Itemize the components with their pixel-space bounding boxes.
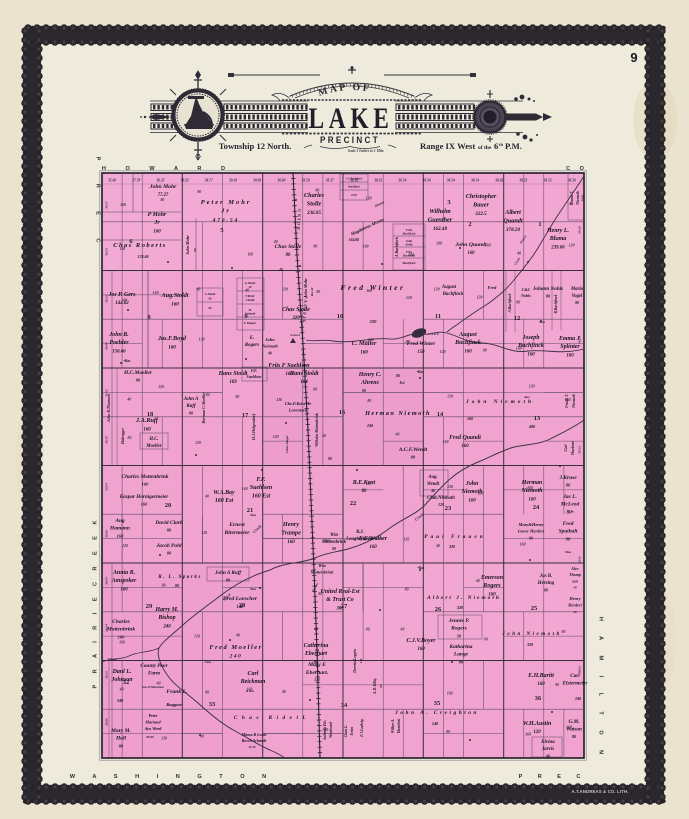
svg-text:80: 80 (160, 198, 164, 202)
svg-text:P Mohr: P Mohr (148, 212, 167, 218)
svg-text:120: 120 (201, 531, 207, 535)
svg-text:80: 80 (167, 528, 172, 533)
svg-text:J.A.Ruff: J.A.Ruff (135, 417, 159, 424)
svg-text:W.H.Austin: W.H.Austin (523, 721, 552, 727)
svg-text:Johann Nohls: Johann Nohls (532, 286, 563, 292)
svg-text:160: 160 (520, 543, 526, 547)
svg-text:160: 160 (447, 692, 453, 696)
svg-text:Chas Stolle: Chas Stolle (275, 244, 302, 250)
svg-text:G.M.: G.M. (569, 719, 580, 725)
svg-text:120: 120 (477, 296, 483, 300)
svg-text:Alex: Alex (570, 566, 578, 571)
svg-text:E.: E. (249, 336, 255, 341)
svg-text:Guenther: Guenther (428, 216, 453, 223)
svg-text:Niemoth: Niemoth (572, 394, 576, 409)
svg-text:25: 25 (531, 605, 538, 612)
svg-text:160: 160 (121, 298, 127, 302)
svg-text:School: School (290, 333, 300, 337)
svg-text:160: 160 (528, 497, 536, 502)
svg-text:Buchfinck: Buchfinck (347, 186, 360, 189)
svg-text:W A S H I N G T O N: W A S H I N G T O N (70, 774, 274, 780)
svg-text:Lange: Lange (453, 652, 469, 658)
svg-text:40: 40 (400, 628, 405, 632)
svg-text:38.57: 38.57 (105, 201, 109, 210)
svg-text:160: 160 (324, 539, 330, 543)
svg-text:80: 80 (483, 349, 487, 353)
svg-text:320: 320 (291, 316, 300, 321)
svg-text:Woodward: Woodward (329, 722, 333, 738)
svg-text:120: 120 (403, 538, 409, 542)
svg-text:Nohls: Nohls (404, 243, 413, 247)
svg-text:38.35: 38.35 (105, 671, 109, 680)
svg-text:Chr.F.Kriscele: Chr.F.Kriscele (285, 401, 311, 406)
svg-text:120: 120 (322, 728, 328, 732)
svg-text:36: 36 (535, 695, 542, 702)
svg-text:Bosch Schmidt: Bosch Schmidt (241, 738, 267, 743)
svg-text:80: 80 (366, 627, 370, 631)
svg-text:74.81: 74.81 (581, 194, 585, 201)
svg-text:160: 160 (142, 482, 149, 487)
svg-text:40: 40 (204, 495, 209, 499)
svg-text:109: 109 (229, 380, 237, 385)
svg-text:Paul Frauen: Paul Frauen (424, 534, 486, 540)
svg-text:23.95: 23.95 (350, 194, 358, 197)
svg-text:40: 40 (267, 351, 272, 355)
svg-text:Habregger: Habregger (121, 427, 125, 445)
svg-text:80: 80 (206, 393, 210, 397)
svg-text:80: 80 (209, 306, 213, 310)
svg-text:Henry: Henry (282, 521, 299, 528)
svg-text:Eberhart: Eberhart (304, 651, 327, 657)
svg-text:Chas.Jaeger: Chas.Jaeger (285, 435, 289, 453)
svg-text:P R E C: P R E C (95, 157, 101, 254)
svg-text:38.03: 38.03 (105, 577, 109, 586)
svg-text:Emerson: Emerson (480, 575, 504, 581)
svg-text:160: 160 (566, 353, 574, 358)
svg-text:160: 160 (247, 687, 253, 691)
svg-text:F.J.Ludwig: F.J.Ludwig (360, 719, 364, 737)
svg-text:80: 80 (200, 735, 204, 739)
svg-text:Buchfinck: Buchfinck (442, 292, 464, 297)
svg-text:A.C.F.Wendt: A.C.F.Wendt (398, 447, 428, 453)
svg-text:Suehlsen: Suehlsen (247, 374, 262, 379)
svg-text:Hanchett: Hanchett (397, 718, 401, 735)
svg-text:46: 46 (430, 489, 435, 493)
svg-text:Chas Stolle: Chas Stolle (282, 307, 310, 313)
svg-text:80: 80 (362, 489, 367, 494)
svg-text:J.Stolle: J.Stolle (245, 298, 255, 302)
svg-text:Mary&Henry: Mary&Henry (518, 522, 544, 527)
svg-text:Fred Moeller: Fred Moeller (209, 644, 262, 651)
svg-text:80: 80 (316, 290, 320, 294)
svg-text:Wilhelm: Wilhelm (429, 208, 451, 215)
svg-text:Chas RidelL: Chas RidelL (234, 715, 310, 721)
svg-text:120: 120 (440, 350, 446, 354)
svg-text:80: 80 (193, 248, 197, 252)
svg-text:160: 160 (117, 533, 124, 538)
svg-text:Jas.F.Boyd: Jas.F.Boyd (157, 335, 187, 342)
svg-text:38.21: 38.21 (518, 179, 527, 183)
svg-text:LAKE: LAKE (309, 102, 394, 135)
svg-text:Lorentzen: Lorentzen (288, 408, 308, 413)
svg-text:160: 160 (436, 242, 442, 246)
svg-text:Wilhelm Mottenbrink: Wilhelm Mottenbrink (315, 413, 319, 447)
svg-text:22: 22 (350, 500, 357, 507)
svg-text:Rogers: Rogers (482, 583, 501, 589)
svg-text:236.95: 236.95 (306, 210, 321, 216)
svg-text:A.T.ANDREAS & CO. LITH.: A.T.ANDREAS & CO. LITH. (571, 789, 628, 794)
svg-text:162.48: 162.48 (433, 226, 447, 232)
svg-text:John Quandt: John Quandt (454, 242, 487, 248)
svg-text:120: 120 (529, 385, 535, 389)
svg-text:160: 160 (461, 444, 469, 449)
svg-text:Bitermeier: Bitermeier (224, 530, 251, 536)
svg-text:40: 40 (545, 753, 550, 758)
svg-text:160: 160 (360, 349, 368, 355)
svg-text:son: son (571, 578, 578, 583)
svg-text:29: 29 (146, 603, 153, 610)
svg-text:Catherina: Catherina (304, 643, 329, 649)
svg-text:Baggart: Baggart (165, 702, 182, 707)
svg-text:160: 160 (527, 352, 535, 357)
svg-text:Carl: Carl (570, 673, 580, 679)
svg-text:Rogers: Rogers (245, 343, 259, 348)
svg-text:Eberhart.: Eberhart. (305, 670, 329, 676)
svg-text:Aya Ward: Aya Ward (144, 726, 163, 731)
svg-text:& Trust Co: & Trust Co (326, 597, 354, 603)
svg-text:120: 120 (314, 678, 320, 682)
svg-text:39.18: 39.18 (228, 179, 237, 183)
svg-text:John Mohr: John Mohr (303, 278, 308, 299)
svg-text:Scale 2 Inches to 1 Mile.: Scale 2 Inches to 1 Mile. (348, 149, 385, 153)
svg-text:40: 40 (568, 202, 573, 206)
svg-text:38.34: 38.34 (422, 179, 431, 183)
svg-text:140: 140 (432, 721, 439, 726)
svg-text:14: 14 (437, 411, 444, 418)
svg-text:Aug.Stoldt: Aug.Stoldt (161, 292, 189, 299)
svg-text:11: 11 (435, 313, 441, 320)
svg-text:A.Wendt: A.Wendt (204, 292, 216, 296)
svg-text:240: 240 (366, 423, 373, 428)
svg-text:160: 160 (247, 253, 253, 257)
svg-text:120: 120 (447, 395, 453, 399)
svg-text:•Kas: •Kas (539, 320, 546, 324)
svg-text:80: 80 (313, 245, 317, 249)
svg-text:39.20: 39.20 (578, 226, 582, 235)
svg-text:40: 40 (156, 681, 161, 685)
svg-text:Range IX West: Range IX West (420, 141, 475, 151)
svg-text:John Niemoth: John Niemoth (465, 399, 534, 405)
svg-text:•Kas: •Kas (250, 587, 257, 591)
svg-text:Wm: Wm (330, 533, 338, 538)
svg-text:9: 9 (630, 50, 637, 65)
svg-text:120: 120 (447, 485, 453, 489)
svg-text:Buchfinck: Buchfinck (401, 261, 416, 265)
svg-text:Herdert: Herdert (567, 602, 582, 607)
svg-text:Mottenbrink: Mottenbrink (309, 570, 334, 575)
svg-text:38.60: 38.60 (276, 179, 285, 183)
svg-text:38.96: 38.96 (349, 179, 358, 183)
svg-text:26: 26 (435, 606, 442, 613)
svg-text:80: 80 (544, 587, 548, 592)
svg-text:A.Buchfinck: A.Buchfinck (508, 293, 512, 313)
svg-text:John Mohr: John Mohr (185, 235, 190, 256)
svg-text:Charles Mottenbrink: Charles Mottenbrink (122, 474, 169, 480)
svg-text:John A: John A (183, 397, 200, 402)
svg-text:160: 160 (153, 229, 161, 234)
svg-text:Gover Herdert: Gover Herdert (518, 529, 545, 534)
svg-text:Buchfinck: Buchfinck (401, 232, 416, 236)
svg-text:th: th (499, 142, 503, 147)
svg-text:Huebner: Huebner (571, 441, 575, 456)
svg-text:B.Buchfinck: B.Buchfinck (554, 294, 558, 314)
svg-text:Henry C.: Henry C. (358, 372, 381, 378)
svg-text:J.Kruse: J.Kruse (558, 475, 577, 481)
svg-text:C.J.V.Boyer: C.J.V.Boyer (406, 638, 436, 644)
svg-text:Wilber A.: Wilber A. (391, 719, 395, 734)
svg-text:40: 40 (235, 634, 240, 638)
svg-text:38.55: 38.55 (543, 179, 552, 183)
svg-text:80: 80 (516, 300, 520, 304)
svg-text:E.Wagner: E.Wagner (243, 321, 257, 325)
svg-text:of the: of the (478, 145, 492, 151)
svg-text:Peter Mohr: Peter Mohr (201, 199, 252, 206)
svg-text:Suehlsen: Suehlsen (250, 485, 273, 491)
svg-text:150: 150 (418, 350, 426, 355)
svg-text:Jacob Pohl: Jacob Pohl (155, 543, 182, 549)
svg-text:Hall: Hall (115, 736, 126, 742)
svg-text:38.88: 38.88 (105, 342, 109, 351)
svg-text:120: 120 (366, 197, 372, 201)
svg-text:38.92: 38.92 (180, 179, 189, 183)
svg-text:Elstermeier: Elstermeier (562, 680, 589, 686)
svg-text:160: 160 (120, 587, 128, 592)
svg-text:34: 34 (341, 702, 348, 709)
svg-text:80: 80 (566, 483, 571, 488)
svg-text:Carl: Carl (564, 444, 568, 452)
svg-text:160 Est: 160 Est (252, 493, 271, 499)
svg-text:80: 80 (119, 743, 124, 748)
svg-text:120: 120 (122, 544, 128, 548)
svg-text:Charles: Charles (112, 619, 130, 625)
svg-text:P R A I R I E C R E E K: P R A I R I E C R E E K (93, 516, 99, 689)
svg-text:80: 80 (396, 374, 400, 378)
svg-text:2: 2 (468, 221, 471, 228)
svg-text:John A Ruff: John A Ruff (214, 570, 243, 576)
svg-text:Jos P. Gers: Jos P. Gers (107, 292, 136, 298)
svg-text:38.31: 38.31 (373, 179, 382, 183)
svg-text:Jarvis: Jarvis (541, 747, 554, 752)
svg-text:38.31: 38.31 (578, 556, 582, 565)
svg-text:40: 40 (244, 289, 249, 293)
svg-text:Beickman: Beickman (240, 679, 266, 685)
svg-text:John A. Creighton: John A. Creighton (394, 710, 479, 716)
svg-text:160: 160 (443, 440, 449, 444)
svg-text:Albert: Albert (504, 209, 521, 216)
svg-text:120: 120 (195, 441, 201, 445)
svg-text:1: 1 (538, 221, 541, 228)
svg-text:38.37: 38.37 (325, 179, 334, 183)
svg-text:160: 160 (119, 641, 125, 645)
svg-text:160: 160 (168, 344, 176, 350)
svg-text:164.86: 164.86 (349, 238, 360, 242)
svg-text:80: 80 (362, 389, 366, 393)
svg-text:Mottenbrink: Mottenbrink (106, 627, 135, 633)
svg-text:80: 80 (315, 189, 319, 193)
svg-text:38.74: 38.74 (397, 179, 406, 183)
svg-text:80: 80 (379, 684, 383, 688)
svg-text:E.H.Baritt: E.H.Baritt (527, 673, 554, 679)
svg-text:160: 160 (464, 349, 472, 354)
svg-text:38.58: 38.58 (105, 436, 109, 445)
svg-text:John: John (264, 337, 275, 342)
svg-text:McLeod: McLeod (560, 502, 580, 508)
svg-text:40: 40 (313, 628, 318, 632)
svg-text:P.M.: P.M. (505, 141, 522, 151)
svg-text:160: 160 (143, 426, 151, 432)
svg-text:80: 80 (405, 588, 409, 592)
svg-text:Moeller: Moeller (145, 444, 161, 449)
svg-text:178.46: 178.46 (138, 254, 149, 259)
svg-text:Joseph: Joseph (521, 335, 539, 341)
svg-text:LAKE: LAKE (428, 332, 440, 336)
svg-text:Frits F Suehlsen: Frits F Suehlsen (268, 363, 310, 369)
svg-text:33: 33 (209, 701, 216, 708)
svg-text:40: 40 (119, 687, 124, 691)
svg-text:156.66: 156.66 (112, 349, 126, 354)
svg-text:Mary E: Mary E (307, 662, 326, 668)
svg-text:80: 80 (197, 190, 201, 194)
svg-text:John Niemoth: John Niemoth (501, 632, 562, 637)
svg-text:Peter: Peter (148, 713, 157, 718)
svg-text:Ahrens: Ahrens (360, 380, 380, 386)
svg-text:F.F.: F.F. (251, 368, 257, 373)
svg-text:County Poor: County Poor (140, 663, 168, 669)
svg-text:120: 120 (366, 482, 372, 486)
svg-text:Kaspar Hornigermeier: Kaspar Hornigermeier (119, 494, 170, 500)
svg-text:120: 120 (438, 503, 444, 507)
svg-text:104: 104 (300, 380, 308, 385)
svg-text:80: 80 (446, 730, 450, 734)
svg-text:Stolle: Stolle (307, 200, 322, 207)
svg-text:120: 120 (273, 435, 279, 439)
svg-text:Nohls: Nohls (520, 293, 531, 298)
svg-text:38.66: 38.66 (105, 530, 109, 539)
svg-text:80: 80 (328, 457, 332, 461)
svg-text:160: 160 (525, 732, 531, 736)
svg-text:August: August (458, 332, 477, 338)
svg-text:239.06: 239.06 (550, 245, 565, 250)
svg-text:Jas B.: Jas B. (539, 574, 553, 579)
svg-text:Poehler: Poehler (109, 340, 129, 346)
svg-text:10: 10 (337, 313, 344, 320)
svg-text:Fred Winter: Fred Winter (407, 341, 436, 347)
svg-text:38.54: 38.54 (446, 179, 455, 183)
svg-text:40: 40 (572, 586, 577, 590)
svg-text:40: 40 (317, 592, 322, 596)
svg-text:12: 12 (514, 315, 521, 322)
svg-text:Fred: Fred (563, 521, 574, 527)
svg-text:Rez 40: Rez 40 (310, 287, 314, 296)
svg-text:Niemoth: Niemoth (576, 191, 580, 206)
svg-text:50: 50 (457, 633, 462, 638)
svg-text:School: School (107, 657, 116, 661)
svg-text:160: 160 (516, 347, 522, 351)
svg-text:Neimoth: Neimoth (261, 344, 278, 349)
svg-text:40: 40 (435, 544, 440, 548)
svg-text:80: 80 (406, 340, 410, 344)
svg-text:B.E.Kent: B.E.Kent (352, 480, 376, 486)
svg-text:120: 120 (282, 288, 288, 292)
svg-text:H.C.: H.C. (148, 437, 158, 442)
svg-text:80: 80 (196, 288, 200, 292)
svg-text:Bauer: Bauer (472, 201, 489, 208)
svg-text:80: 80 (529, 536, 533, 540)
svg-text:35: 35 (434, 700, 441, 707)
svg-text:24: 24 (533, 504, 540, 511)
svg-text:H.J.Holgendorf: H.J.Holgendorf (251, 413, 256, 441)
svg-text:80: 80 (286, 253, 291, 258)
svg-text:Splinter: Splinter (560, 344, 580, 350)
svg-text:•Kas: •Kas (418, 566, 425, 570)
svg-text:•Kas: •Kas (124, 359, 131, 363)
svg-text:R. L. Sparks: R. L. Sparks (158, 575, 202, 580)
svg-text:160: 160 (287, 539, 295, 545)
svg-text:240: 240 (574, 696, 581, 701)
svg-text:160: 160 (368, 338, 374, 342)
svg-text:80: 80 (235, 395, 239, 399)
svg-text:160: 160 (477, 492, 483, 496)
svg-text:Charles: Charles (304, 192, 325, 199)
svg-text:Aug: Aug (114, 518, 125, 524)
svg-text:Jr: Jr (153, 220, 160, 226)
svg-text:Hamann: Hamann (109, 526, 130, 532)
svg-text:320: 320 (369, 319, 378, 324)
svg-text:Herman Niemoth: Herman Niemoth (364, 410, 431, 417)
svg-text:160: 160 (141, 501, 148, 506)
svg-text:240: 240 (229, 654, 242, 660)
svg-text:120: 120 (199, 338, 205, 342)
svg-text:PRECINCT: PRECINCT (320, 135, 380, 145)
svg-text:Henry: Henry (569, 596, 581, 601)
svg-text:Fred Quandt: Fred Quandt (449, 435, 481, 441)
svg-text:120: 120 (569, 244, 575, 248)
svg-text:40 40: 40 40 (248, 745, 256, 749)
svg-text:160: 160 (171, 301, 179, 307)
svg-text:80: 80 (128, 436, 132, 440)
svg-text:80: 80 (136, 378, 141, 383)
svg-text:476.54: 476.54 (212, 217, 239, 223)
svg-text:38.58: 38.58 (301, 179, 310, 183)
svg-text:A.Buchfinck: A.Buchfinck (395, 237, 399, 258)
svg-text:160: 160 (565, 398, 571, 402)
svg-text:37.78: 37.78 (131, 179, 140, 183)
svg-text:Jr: Jr (220, 208, 231, 215)
svg-text:Trampe: Trampe (281, 529, 301, 536)
svg-text:David Clark: David Clark (154, 520, 183, 526)
svg-text:Henry L.: Henry L. (546, 228, 569, 234)
svg-text:120: 120 (406, 296, 412, 300)
svg-text:Fred: Fred (488, 285, 498, 290)
svg-text:80: 80 (459, 659, 464, 664)
svg-text:Geo.W.Mansheur: Geo.W.Mansheur (142, 685, 165, 689)
svg-text:33.94: 33.94 (105, 483, 109, 492)
svg-text:38.56: 38.56 (494, 179, 503, 183)
svg-text:380: 380 (335, 606, 344, 611)
svg-text:40: 40 (572, 610, 577, 614)
svg-text:20: 20 (165, 502, 172, 509)
svg-text:Annia R.: Annia R. (112, 570, 135, 576)
